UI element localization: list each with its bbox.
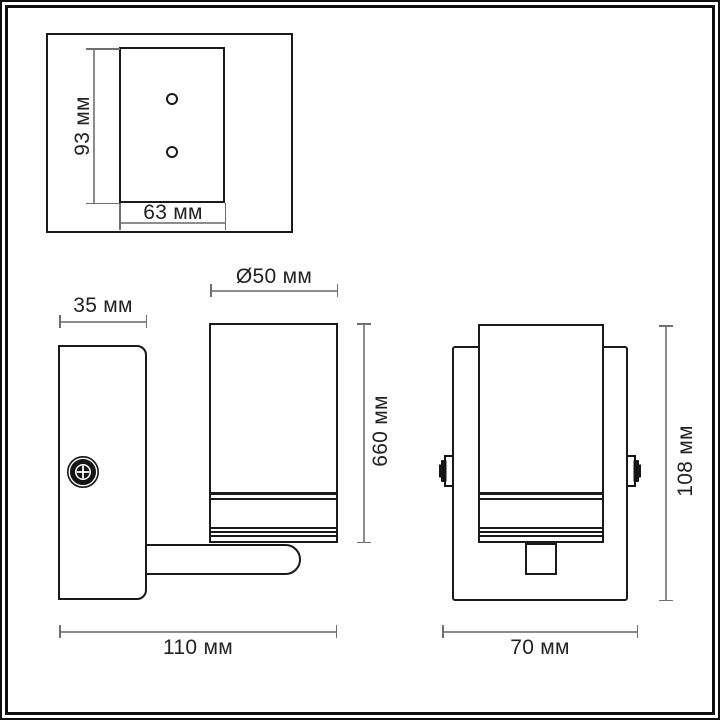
shade-trim-line-2 [210,535,337,537]
dim-label-plate-width: 63 мм [143,201,203,225]
shade-band-bottom-line [210,527,337,529]
front-arm-stub [525,543,557,575]
knob-right-icon [627,454,641,488]
shade-band-top-line [210,498,337,500]
dim-line-plate-depth [59,321,147,323]
dim-line-overall-width [442,631,638,633]
shade-bottom-rim-line [210,492,337,495]
front-shade-cylinder [478,324,604,543]
dim-line-overall-depth [59,631,337,633]
mounting-hole-bottom [166,146,178,158]
knob-left-icon [439,454,453,488]
dim-label-shade-height: 660 мм [369,395,393,467]
side-shade-cylinder [209,323,338,543]
shade-trim-line-1 [210,531,337,533]
shade-band-top-line [479,498,603,500]
shade-bottom-rim-line [479,492,603,495]
dim-label-plate-depth: 35 мм [73,294,133,318]
shade-trim-line-2 [479,535,603,537]
dim-label-overall-height: 108 мм [674,425,698,497]
dim-line-overall-height [665,325,667,601]
dim-label-overall-depth: 110 мм [163,636,233,660]
mounting-hole-top [166,93,178,105]
dim-label-shade-diameter: Ø50 мм [236,265,312,289]
dim-line-shade-height [363,323,365,543]
mounting-plate-outline [119,47,225,203]
technical-drawing-canvas: 93 мм 63 мм 35 мм Ø50 мм 660 мм 110 мм [0,0,720,720]
dim-label-overall-width: 70 мм [510,636,570,660]
side-arm [145,544,301,575]
shade-trim-line-1 [479,531,603,533]
dim-label-plate-height: 93 мм [71,96,95,156]
screw-icon [66,455,100,489]
dim-line-shade-diameter [210,290,338,292]
shade-band-bottom-line [479,527,603,529]
